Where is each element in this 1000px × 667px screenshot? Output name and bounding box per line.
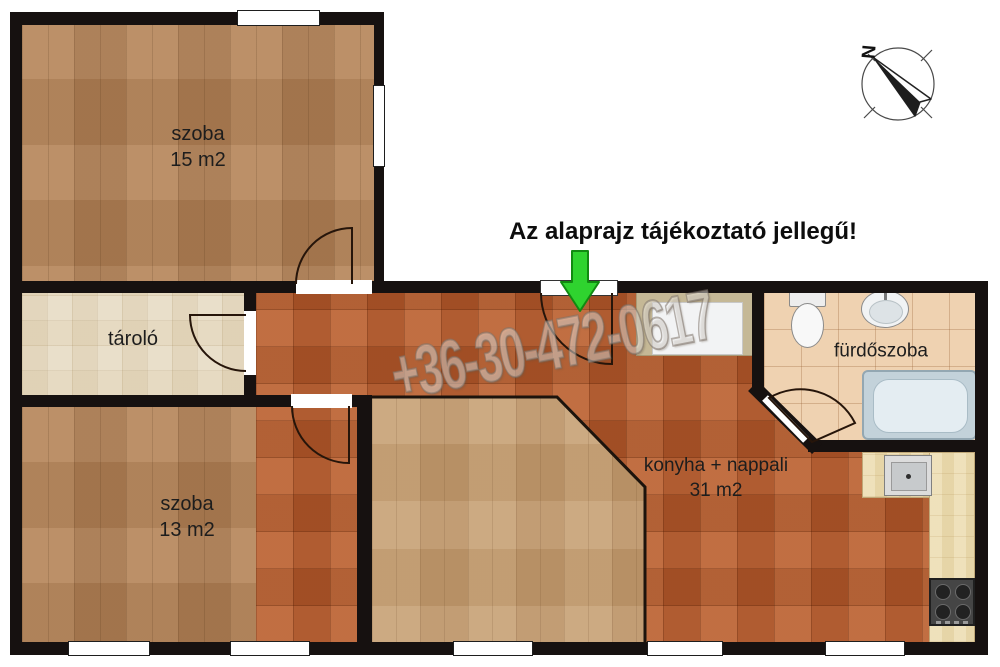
door-opening-bedroom1 xyxy=(296,280,372,294)
stove-burner-1 xyxy=(935,584,951,600)
sink-basin xyxy=(869,300,903,324)
bathtub-basin xyxy=(873,379,968,433)
north-arrow-fill xyxy=(874,58,920,116)
wall-middle xyxy=(10,281,988,293)
room-area: 15 m2 xyxy=(170,147,226,173)
room-area: 13 m2 xyxy=(159,517,215,543)
stove-burner-4 xyxy=(955,604,971,620)
wall-bathroom-left xyxy=(752,281,764,391)
door-opening-bedroom2 xyxy=(291,394,352,408)
room-label-kitchen-living: konyha + nappali 31 m2 xyxy=(644,453,788,503)
room-name: szoba xyxy=(159,491,215,517)
compass: N xyxy=(856,44,934,120)
room-name: fürdőszoba xyxy=(834,339,928,364)
compass-tick-nw xyxy=(868,54,875,61)
room-label-bedroom2: szoba 13 m2 xyxy=(159,491,215,543)
room-name: tároló xyxy=(108,326,158,352)
bathroom-sink xyxy=(861,290,909,328)
floor-plan: szoba 15 m2 tároló szoba 13 m2 konyha + … xyxy=(0,0,1000,667)
window-bedroom1-right xyxy=(373,85,385,167)
wall-right xyxy=(975,281,988,655)
window-top xyxy=(237,10,320,26)
compass-north-label: N xyxy=(856,44,878,60)
wall-left xyxy=(10,12,22,655)
window-bottom-2 xyxy=(230,641,310,656)
room-label-bathroom: fürdőszoba xyxy=(834,339,928,364)
kitchen-sink-drain xyxy=(906,474,911,479)
window-bottom-1 xyxy=(68,641,150,656)
room-label-bedroom1: szoba 15 m2 xyxy=(170,121,226,173)
north-arrow-icon xyxy=(874,58,931,116)
room-area: 31 m2 xyxy=(644,478,788,503)
kitchen-sink xyxy=(884,455,932,496)
room-name: konyha + nappali xyxy=(644,453,788,478)
kitchen-sink-basin xyxy=(891,462,927,491)
compass-center-dot xyxy=(896,82,900,86)
toilet xyxy=(789,291,826,348)
compass-tick-sw xyxy=(864,107,875,118)
compass-tick-se xyxy=(921,107,932,118)
bathtub xyxy=(862,370,977,440)
door-opening-storage xyxy=(244,311,256,375)
wall-bathroom-bottom xyxy=(808,440,988,452)
stove-burner-2 xyxy=(955,584,971,600)
disclaimer-text: Az alaprajz tájékoztató jellegű! xyxy=(509,218,857,246)
wall-top xyxy=(10,12,384,25)
room-name: szoba xyxy=(170,121,226,147)
room-label-storage: tároló xyxy=(108,326,158,352)
window-bottom-5 xyxy=(825,641,905,656)
stove-knobs xyxy=(936,621,969,624)
stove xyxy=(929,578,975,626)
wall-bedroom2-right xyxy=(357,395,372,655)
window-bottom-3 xyxy=(453,641,533,656)
stove-burner-3 xyxy=(935,604,951,620)
compass-tick-ne xyxy=(921,50,932,61)
toilet-bowl xyxy=(791,303,824,348)
window-bottom-4 xyxy=(647,641,723,656)
